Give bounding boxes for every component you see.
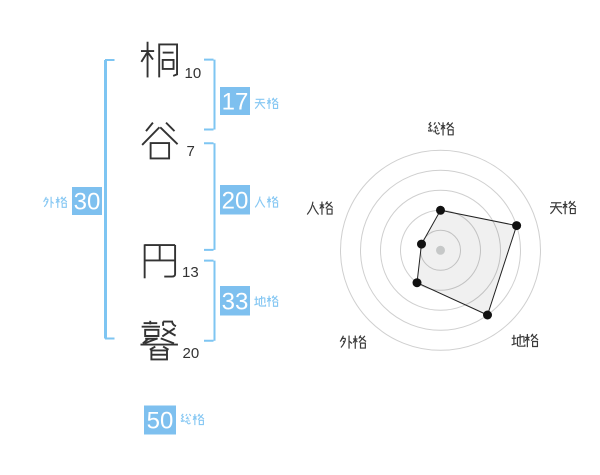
svg-text:50: 50 bbox=[147, 408, 174, 435]
svg-text:20: 20 bbox=[183, 345, 200, 362]
svg-text:10: 10 bbox=[185, 65, 202, 82]
svg-text:30: 30 bbox=[74, 189, 101, 216]
svg-text:33: 33 bbox=[222, 289, 249, 316]
svg-text:17: 17 bbox=[222, 89, 249, 116]
svg-text:7: 7 bbox=[187, 143, 195, 160]
svg-text:20: 20 bbox=[222, 188, 249, 215]
svg-text:13: 13 bbox=[182, 264, 199, 281]
